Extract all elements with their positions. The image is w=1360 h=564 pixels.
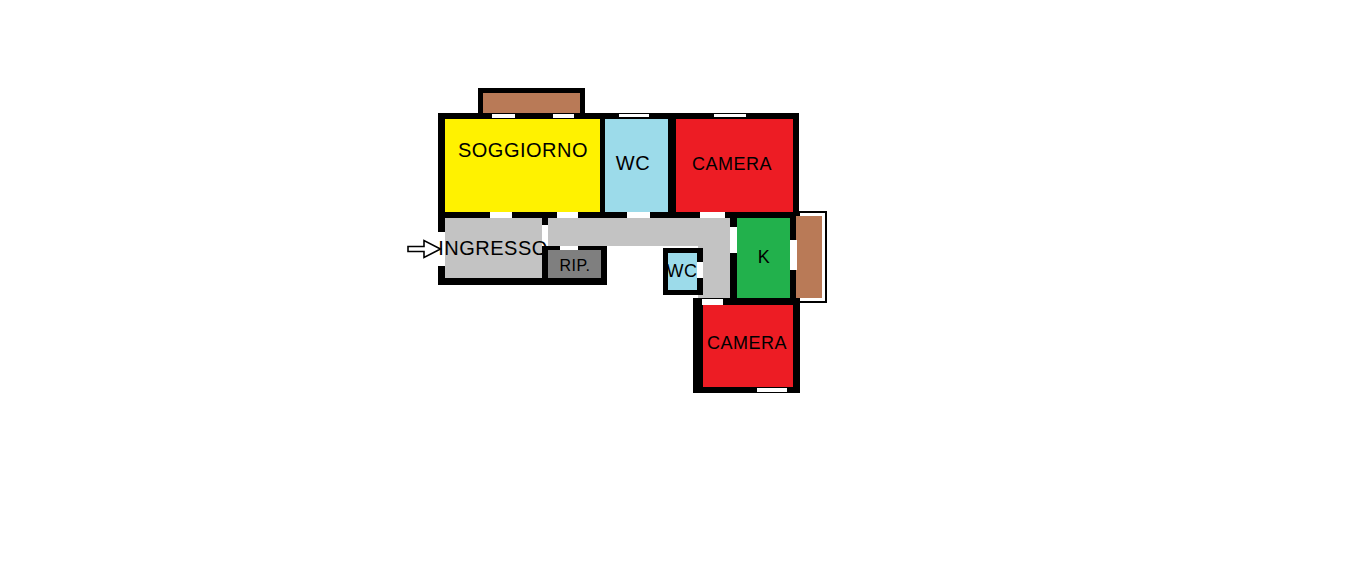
window-opening-balcony-left (492, 114, 515, 118)
room-label-camera-bottom: CAMERA (707, 333, 787, 354)
floor-plan: SOGGIORNO WC CAMERA INGRESSO RIP. WC K C… (0, 0, 1360, 564)
door-opening-soggiorno-ingresso (490, 212, 512, 218)
room-label-rip: RIP. (559, 257, 590, 275)
window-opening-camera-bottom (757, 388, 787, 392)
room-label-wc-top: WC (616, 152, 650, 175)
room-label-ingresso: INGRESSO (438, 237, 548, 260)
window-opening-camera-top (714, 114, 746, 117)
entrance-arrow-icon (405, 237, 445, 261)
corridor-horizontal (548, 218, 730, 246)
room-label-wc-small: WC (667, 261, 698, 282)
door-opening-camera-bottom (702, 299, 723, 305)
room-label-kitchen: K (758, 247, 771, 268)
balcony-top (483, 93, 580, 113)
room-soggiorno (445, 119, 600, 212)
balcony-right (796, 216, 822, 298)
door-opening-wc-small (697, 262, 703, 278)
window-opening-balcony-right (553, 114, 574, 118)
door-opening-kitchen (730, 227, 737, 253)
room-label-soggiorno: SOGGIORNO (458, 139, 588, 162)
door-opening-wc-top (627, 212, 650, 218)
door-opening-rip (560, 246, 578, 250)
door-opening-kitchen-balcony (790, 240, 797, 270)
room-label-camera-top: CAMERA (692, 154, 772, 175)
door-opening-soggiorno-corridor (557, 212, 578, 218)
window-opening-wc-top (619, 114, 649, 117)
door-opening-camera-top (700, 212, 725, 218)
